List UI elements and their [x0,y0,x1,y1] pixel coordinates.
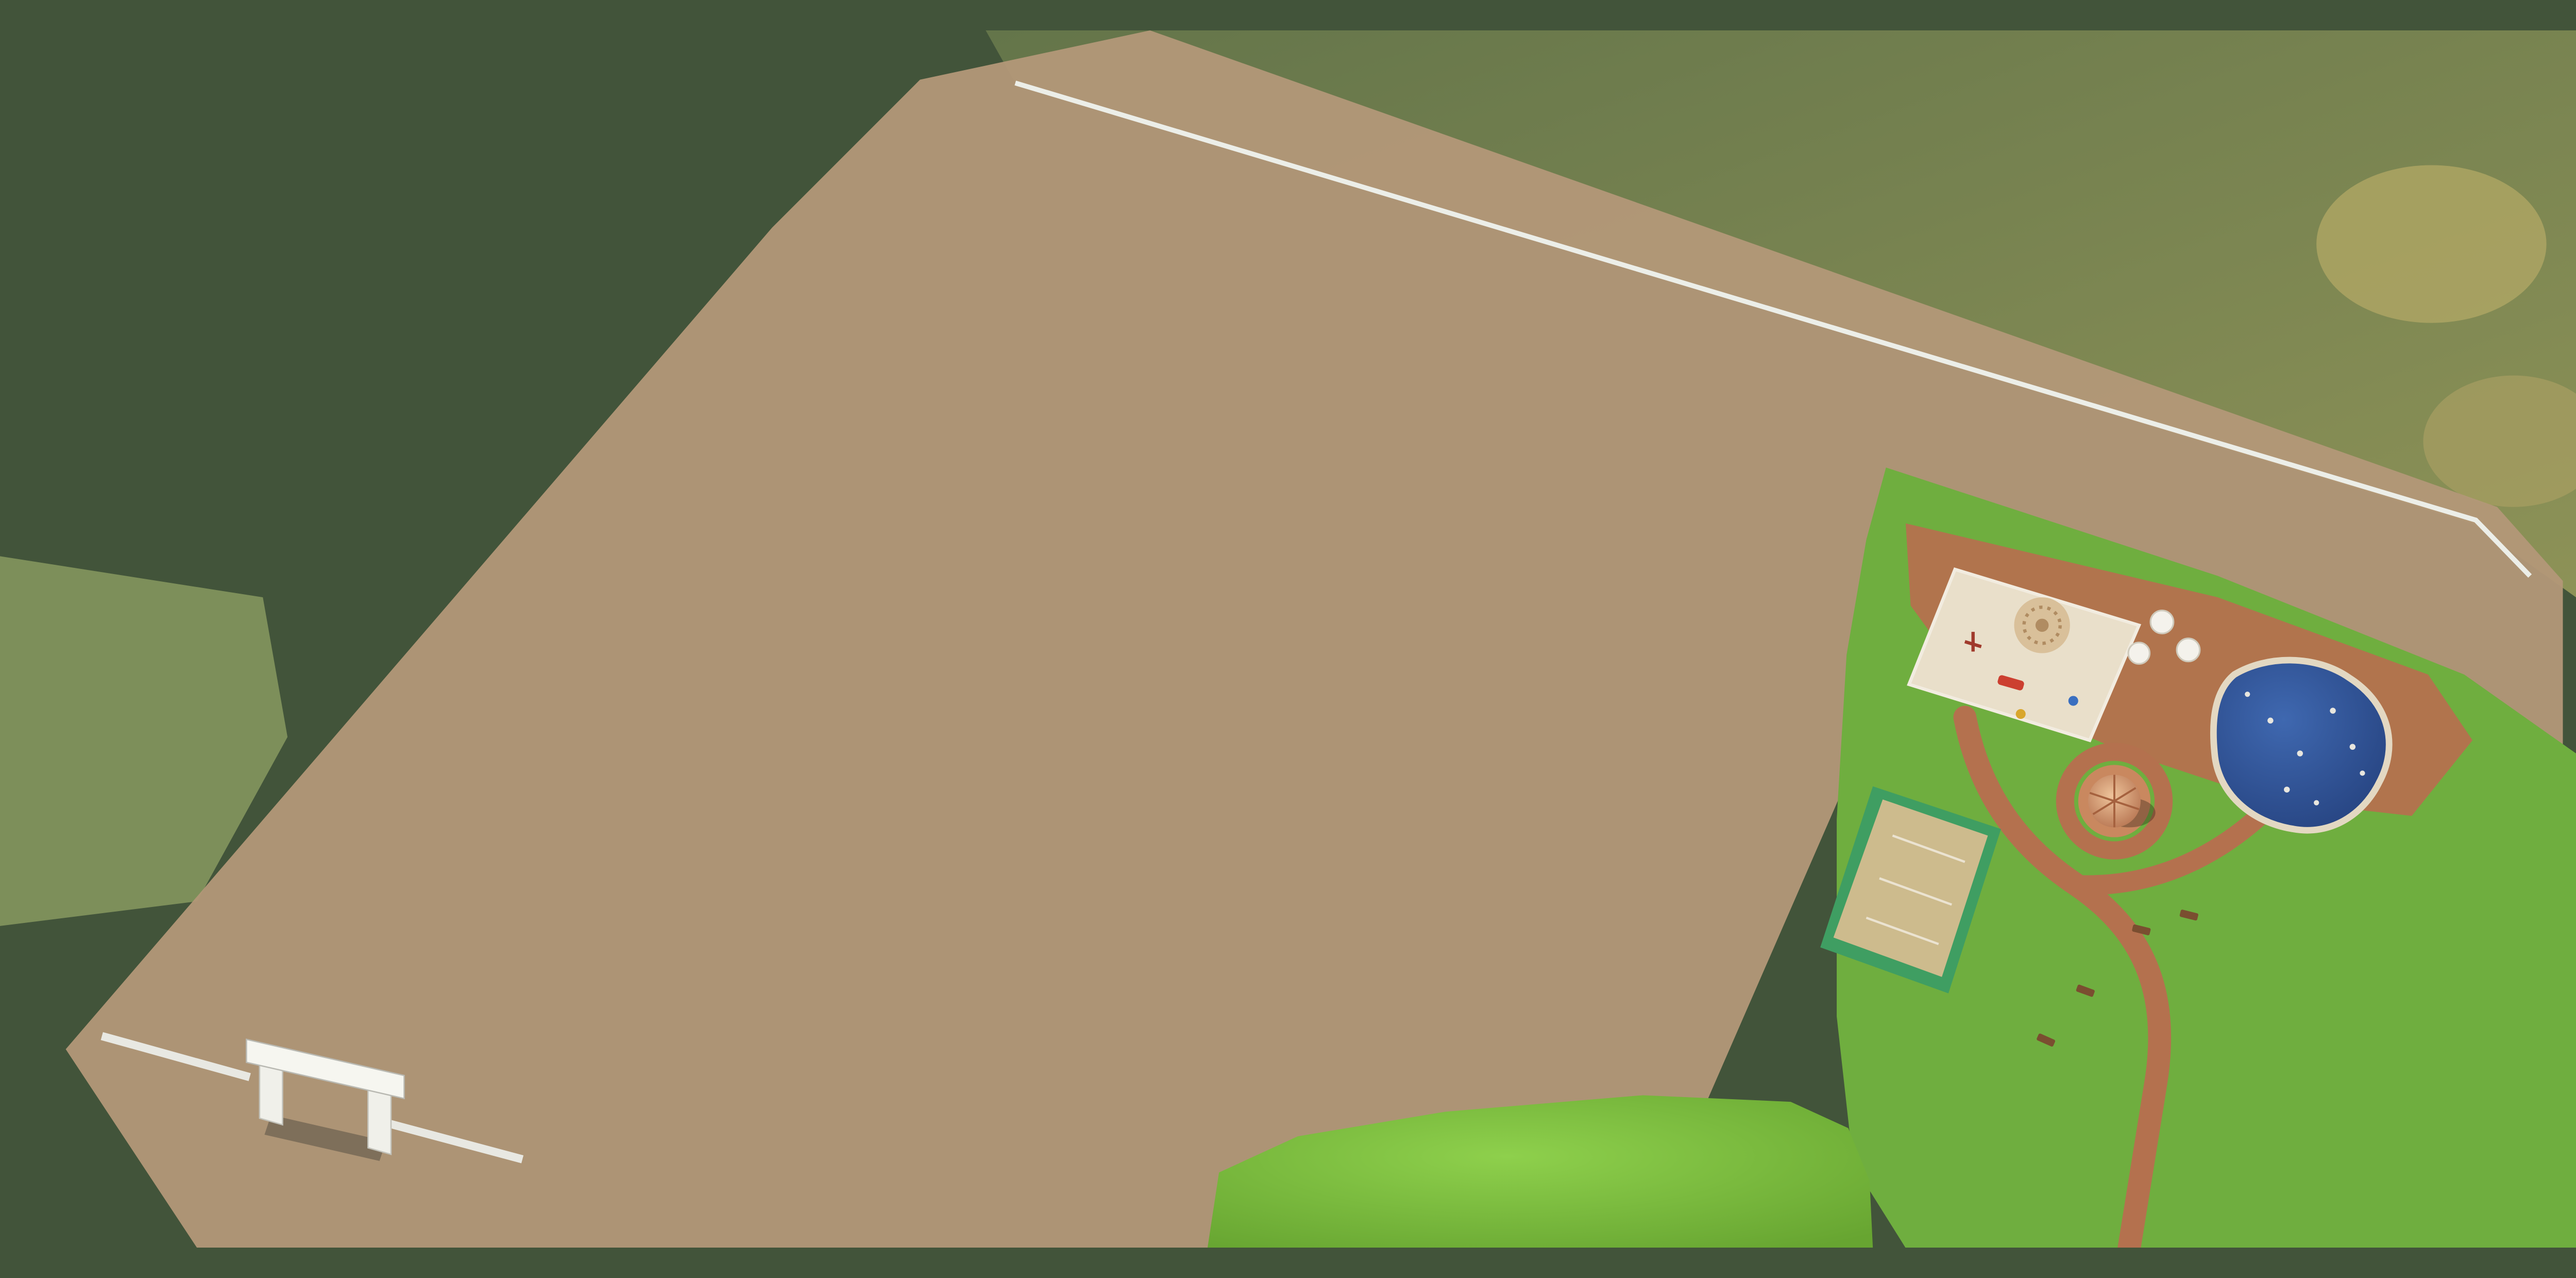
swimming-pool [2213,660,2389,830]
play-equipment [2016,709,2026,719]
dry-grass-patch [2316,165,2546,323]
mandala-center [2036,618,2049,632]
play-equipment [2069,696,2078,705]
site-plan-rendering: const data = JSON.parse(document.getElem… [0,30,2576,1248]
